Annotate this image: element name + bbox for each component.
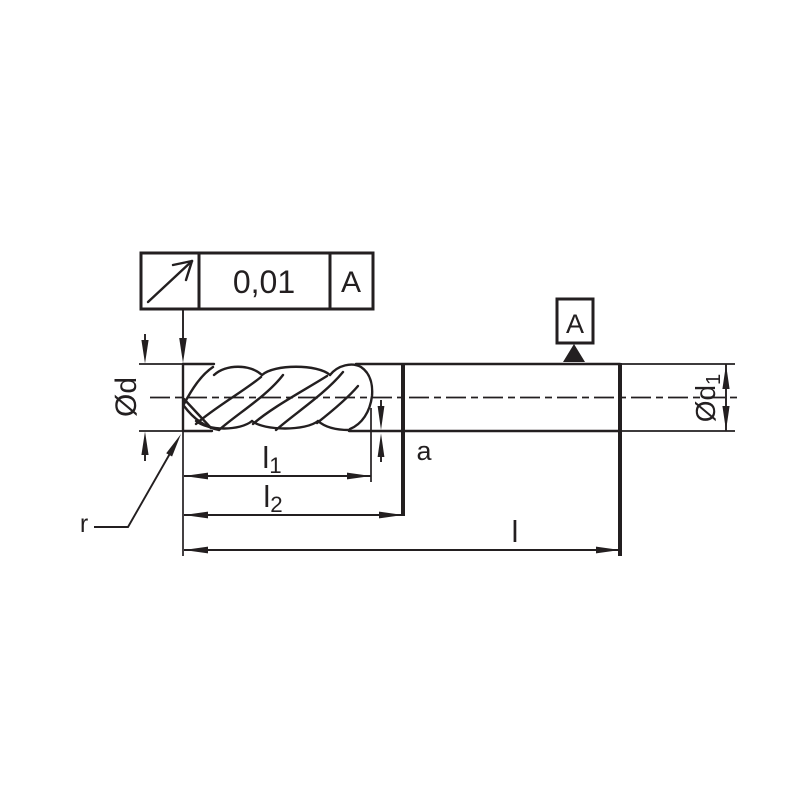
drawing-canvas: 0,01 A A Ød Ød1 (0, 0, 800, 800)
circular-runout-arrow-icon (148, 261, 192, 302)
cut-diameter-label: Ød (110, 377, 143, 417)
technical-drawing-endmill: 0,01 A A Ød Ød1 (0, 0, 800, 800)
leader-corner-radius: r (80, 434, 181, 538)
datum-triangle-icon (563, 344, 585, 362)
fcf-leader (179, 309, 187, 363)
fcf-tolerance-value: 0,01 (233, 264, 295, 300)
dim-step-a: a (378, 400, 433, 466)
endmill-outline (183, 363, 620, 556)
dim-flute-length: l1 (184, 408, 371, 482)
feature-control-frame: 0,01 A (141, 253, 373, 363)
step-label: a (416, 436, 432, 466)
usable-length-label: l2 (263, 479, 282, 517)
datum-flag-label: A (566, 309, 584, 339)
overall-length-label: l (512, 514, 519, 549)
shank-diameter-label: Ød1 (690, 374, 725, 423)
corner-radius-label: r (80, 510, 88, 538)
dim-cut-diameter: Ød (110, 334, 183, 461)
datum-target: A (557, 299, 593, 362)
dim-overall-length: l (184, 514, 620, 553)
flute-length-label: l1 (262, 440, 281, 478)
dim-usable-length: l2 (184, 479, 403, 518)
fcf-datum-reference: A (341, 266, 361, 299)
